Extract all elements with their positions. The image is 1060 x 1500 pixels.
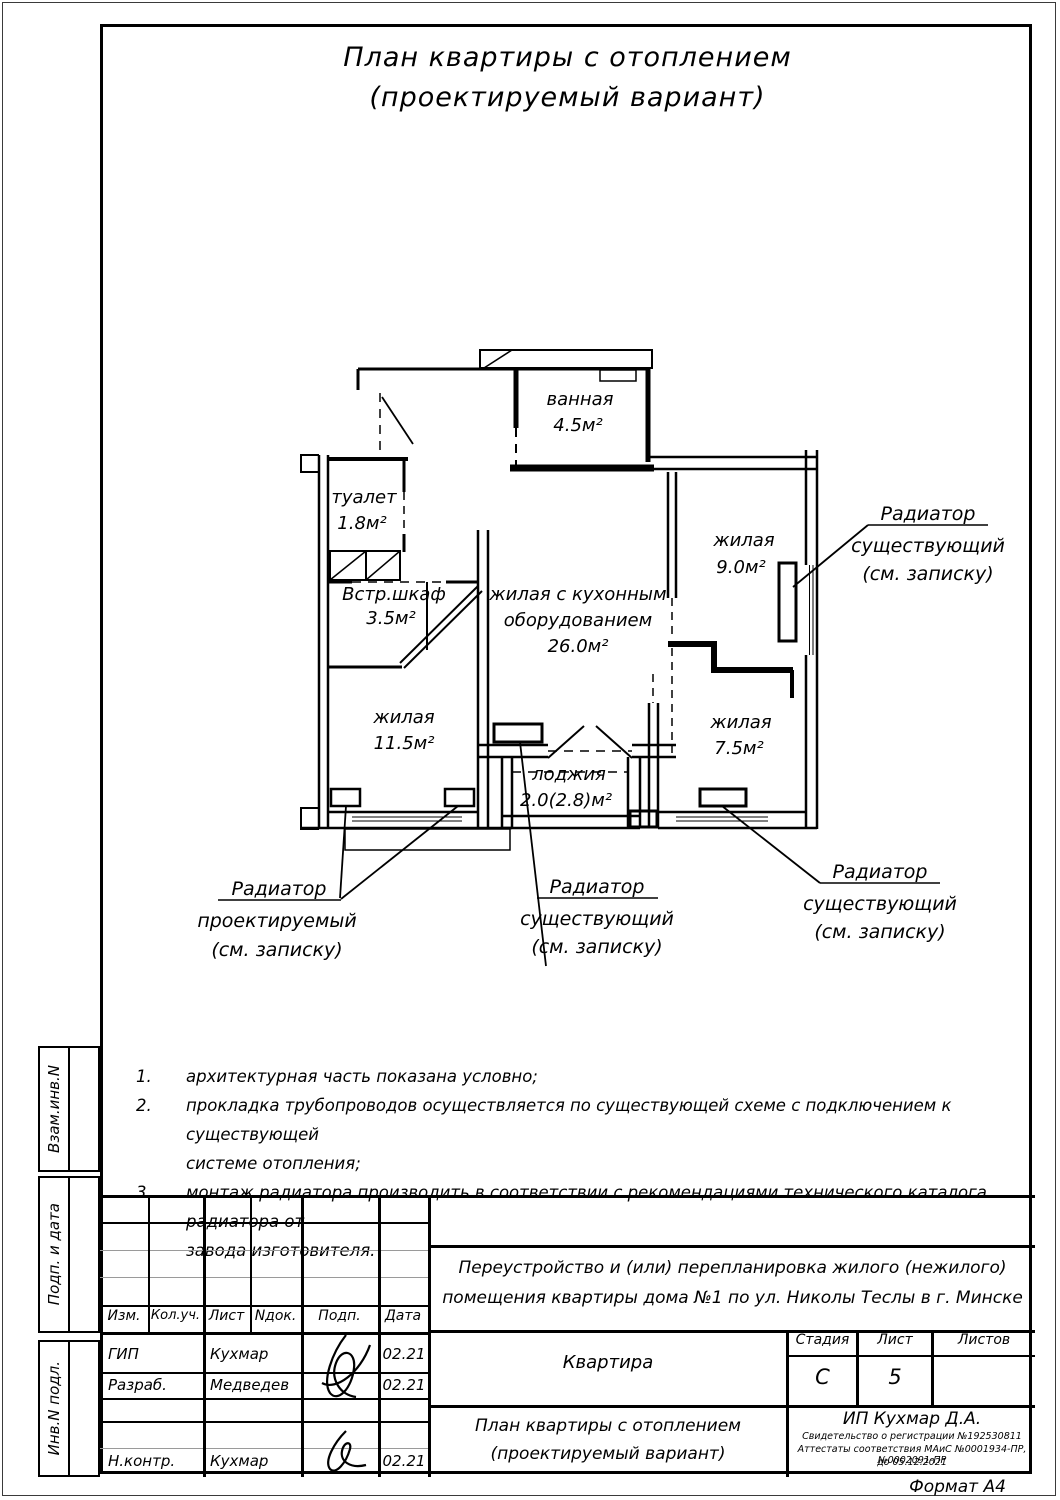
row-nkontr-date: 02.21 xyxy=(380,1452,428,1470)
radiator-kitchen xyxy=(494,724,542,742)
room-loggia-area: 2.0(2.8)м² xyxy=(520,790,612,811)
room-toilet-name: туалет xyxy=(331,487,397,508)
format-label: Формат А4 xyxy=(880,1477,1035,1497)
col-data: Дата xyxy=(378,1308,428,1324)
note-3-line1: монтаж радиатора производить в соответст… xyxy=(186,1178,1021,1236)
row-gip-role: ГИП xyxy=(108,1345,203,1363)
room-closet-name: Встр.шкаф xyxy=(342,584,446,605)
room-kitchen-name1: жилая с кухонным xyxy=(488,584,666,605)
row-razrab-name: Медведев xyxy=(210,1376,305,1394)
col-list: Лист xyxy=(203,1308,250,1324)
callout-bottom-left-line2: проектируемый xyxy=(197,910,356,932)
radiator-living1-b xyxy=(445,789,474,806)
callout-bottom-left-line3: (см. записку) xyxy=(211,939,342,961)
doc-title-line2: (проектируемый вариант) xyxy=(430,1440,786,1468)
room-kitchen-area: 26.0м² xyxy=(548,636,609,657)
callout-bottom-center-line1: Радиатор xyxy=(550,876,645,898)
project-line1: Переустройство и (или) перепланировка жи… xyxy=(440,1253,1025,1283)
col-koluch: Кол.уч. xyxy=(148,1308,203,1323)
note-2: 2. прокладка трубопроводов осуществляетс… xyxy=(136,1091,1021,1178)
room-loggia-name: лоджия xyxy=(531,764,606,785)
project-line2: помещения квартиры дома №1 по ул. Николы… xyxy=(440,1283,1025,1313)
note-1-text: архитектурная часть показана условно; xyxy=(186,1062,538,1091)
doc-title: План квартиры с отоплением (проектируемы… xyxy=(430,1412,786,1468)
signature-gip xyxy=(312,1333,378,1403)
cert-line1: Свидетельство о регистрации №192530811 xyxy=(789,1431,1035,1442)
callout-bottom-center-line2: существующий xyxy=(520,908,674,930)
room-kitchen-name2: оборудованием xyxy=(504,610,652,631)
drawing-sheet: { "page": { "title_line1": "План квартир… xyxy=(0,0,1060,1500)
callout-bottom-right-line2: существующий xyxy=(803,893,957,915)
callout-top-right-line2: существующий xyxy=(851,535,1005,557)
note-1-num: 1. xyxy=(136,1062,186,1091)
room-living2-area: 9.0м² xyxy=(716,557,765,578)
room-closet-area: 3.5м² xyxy=(366,608,415,629)
col-podp: Подп. xyxy=(301,1308,378,1324)
callout-bottom-right-line1: Радиатор xyxy=(833,861,928,883)
row-razrab-role: Разраб. xyxy=(108,1376,203,1394)
stage-value: С xyxy=(789,1365,856,1389)
callout-bottom-right-line3: (см. записку) xyxy=(814,921,945,943)
callout-bottom-center-line3: (см. записку) xyxy=(531,936,662,958)
stage-label: Стадия xyxy=(789,1332,856,1348)
room-living3-name: жилая xyxy=(709,712,771,733)
note-2-text: прокладка трубопроводов осуществляется п… xyxy=(186,1091,1021,1178)
callout-bottom-left-line1: Радиатор xyxy=(232,878,327,900)
project-description: Переустройство и (или) перепланировка жи… xyxy=(440,1253,1025,1313)
room-living1-name: жилая xyxy=(372,707,434,728)
callout-top-right-line1: Радиатор xyxy=(881,503,976,525)
note-2-line1: прокладка трубопроводов осуществляется п… xyxy=(186,1091,1021,1149)
general-notes: 1. архитектурная часть показана условно;… xyxy=(136,1062,1021,1265)
radiator-living2 xyxy=(779,563,796,641)
object-name: Квартира xyxy=(430,1352,786,1373)
signature-nkontr xyxy=(316,1427,372,1473)
col-ndok: Nдок. xyxy=(250,1308,301,1324)
note-1: 1. архитектурная часть показана условно; xyxy=(136,1062,1021,1091)
company-name: ИП Кухмар Д.А. xyxy=(789,1409,1035,1429)
row-razrab-date: 02.21 xyxy=(380,1376,428,1394)
doc-title-line1: План квартиры с отоплением xyxy=(430,1412,786,1440)
room-living3-area: 7.5м² xyxy=(714,738,763,759)
sheets-label: Листов xyxy=(934,1332,1034,1348)
room-living2-name: жилая xyxy=(712,530,774,551)
note-2-line2: системе отопления; xyxy=(186,1149,1021,1178)
room-bath-name: ванная xyxy=(546,389,613,410)
cert-line3: до 05.12.2021 xyxy=(789,1457,1035,1468)
room-toilet-area: 1.8м² xyxy=(337,513,386,534)
row-nkontr-role: Н.контр. xyxy=(108,1452,203,1470)
radiator-living1-a xyxy=(331,789,360,806)
room-living1-area: 11.5м² xyxy=(374,733,435,754)
room-labels: ванная 4.5м² туалет 1.8м² Встр.шкаф 3.5м… xyxy=(331,389,774,811)
row-nkontr-name: Кухмар xyxy=(210,1452,305,1470)
callout-top-right-line3: (см. записку) xyxy=(862,563,993,585)
note-2-num: 2. xyxy=(136,1091,186,1178)
sheet-value: 5 xyxy=(859,1365,931,1389)
sheet-label: Лист xyxy=(859,1332,931,1348)
radiator-living3 xyxy=(700,789,746,806)
col-izm: Изм. xyxy=(100,1308,148,1324)
row-gip-date: 02.21 xyxy=(380,1345,428,1363)
row-gip-name: Кухмар xyxy=(210,1345,305,1363)
room-bath-area: 4.5м² xyxy=(553,415,602,436)
